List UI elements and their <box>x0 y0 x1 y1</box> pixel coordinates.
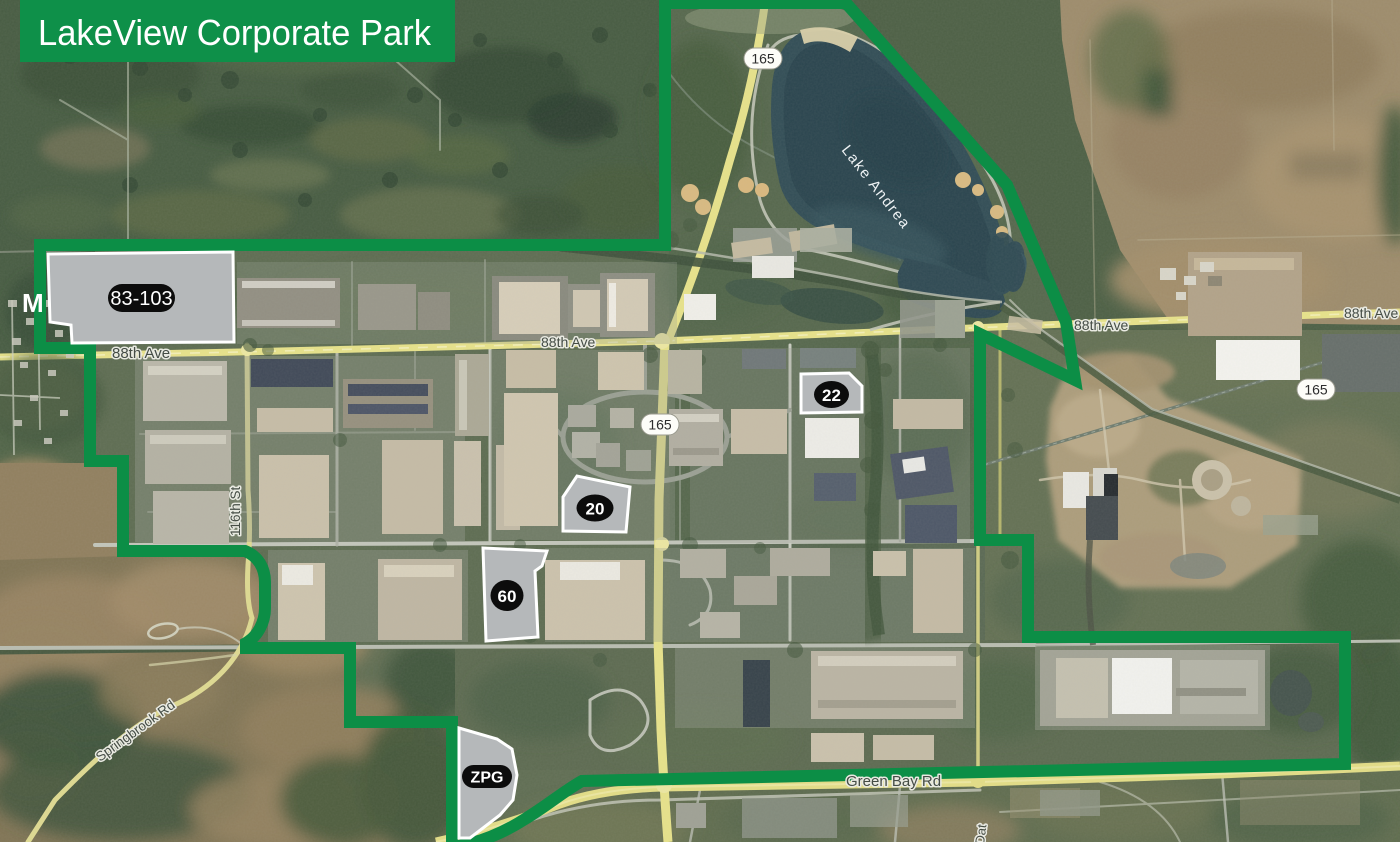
svg-text:M: M <box>22 288 44 318</box>
svg-text:165: 165 <box>648 417 672 433</box>
svg-text:LakeView Corporate Park: LakeView Corporate Park <box>38 12 432 53</box>
svg-text:22: 22 <box>822 386 841 405</box>
svg-text:165: 165 <box>751 51 775 67</box>
svg-text:60: 60 <box>498 587 517 606</box>
svg-text:20: 20 <box>586 500 605 519</box>
svg-text:88th Ave: 88th Ave <box>1344 305 1398 321</box>
svg-text:116th St: 116th St <box>228 486 243 536</box>
svg-text:88th Ave: 88th Ave <box>112 345 170 362</box>
svg-text:83-103: 83-103 <box>110 288 172 310</box>
svg-text:ZPG: ZPG <box>471 770 504 787</box>
svg-text:Green Bay Rd: Green Bay Rd <box>846 773 941 790</box>
svg-text:88th Ave: 88th Ave <box>541 334 595 350</box>
svg-text:Dat: Dat <box>972 823 989 842</box>
svg-text:165: 165 <box>1304 382 1328 398</box>
svg-text:88th Ave: 88th Ave <box>1074 317 1128 333</box>
